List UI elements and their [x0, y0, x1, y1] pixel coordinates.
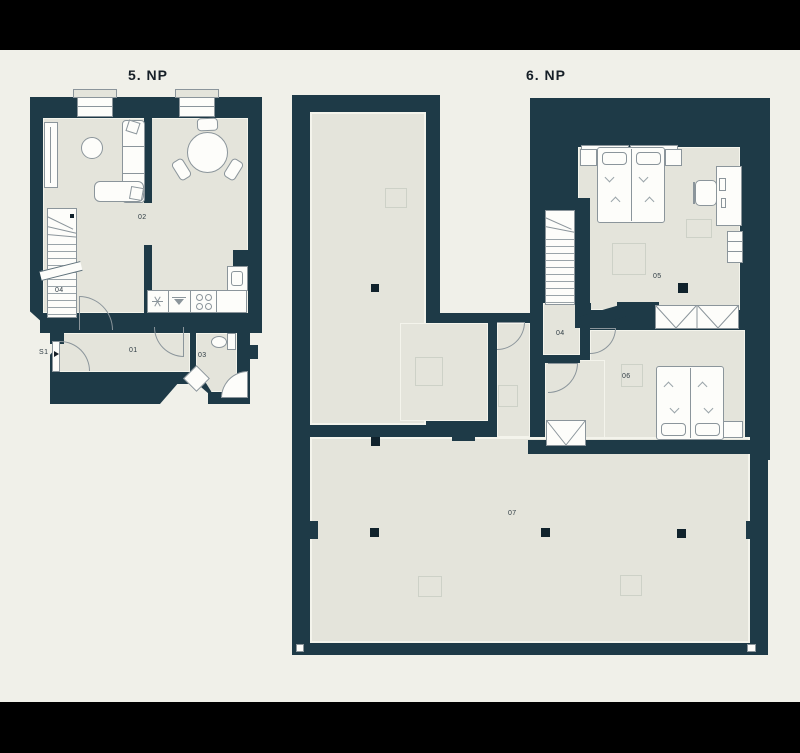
- bed-06-chevron-3: [670, 404, 680, 414]
- dining-table-icon: [187, 132, 228, 173]
- room-label-02: 02: [138, 214, 147, 221]
- room-label-04-6np: 04: [556, 330, 565, 337]
- skylight-corridor: [498, 385, 518, 407]
- bed-05-divider: [631, 149, 632, 221]
- bed-05-icon: [597, 147, 665, 223]
- burner-icon-2: [205, 294, 212, 301]
- shelf-icon: [727, 231, 743, 263]
- partition-upper: [144, 118, 152, 203]
- toilet-bowl-icon: [211, 336, 227, 348]
- burner-icon-1: [196, 294, 203, 301]
- desk-chair-icon: [695, 180, 717, 206]
- skylight-bedroom-05: [612, 243, 646, 275]
- room-label-01: 01: [129, 347, 138, 354]
- dining-chair-top: [197, 118, 218, 132]
- small-room-floor: [400, 323, 488, 421]
- kitchen-divider-3: [216, 291, 217, 312]
- entrance-label-s1: S1: [39, 349, 48, 356]
- desk-monitor: [719, 178, 726, 191]
- corner-notch-se: [747, 644, 756, 652]
- wall-stair-east: [573, 198, 590, 305]
- bench-06-icon: [723, 421, 743, 438]
- kitchen-divider-2: [190, 291, 191, 312]
- entrance-arrow-icon: [54, 351, 59, 357]
- column-07-a: [371, 437, 380, 446]
- bed-05-pillow-right: [636, 152, 661, 165]
- column-07-b: [370, 528, 379, 537]
- desk-chair-back: [693, 182, 695, 204]
- toilet-tank-icon: [227, 333, 236, 350]
- room-label-06: 06: [622, 373, 631, 380]
- skylight-07-a: [418, 576, 442, 597]
- desk-icon: [716, 166, 742, 226]
- bed-05-chevron-2: [639, 173, 649, 183]
- wall-hall-top-b: [113, 313, 152, 333]
- wall-06-north: [617, 302, 659, 316]
- wall-pilaster-west: [309, 521, 318, 539]
- wall-room04-south: [543, 355, 580, 363]
- chimney-icon: [678, 283, 688, 293]
- bed-06-chevron-2: [698, 382, 708, 392]
- bed-05-chevron-3: [611, 197, 621, 207]
- sofa-cushion-line-2: [123, 173, 144, 174]
- wall-smallroom-notch: [452, 430, 475, 441]
- corner-notch-sw: [296, 644, 304, 652]
- wardrobe-icon-05: [655, 305, 739, 329]
- burner-icon-3: [196, 303, 203, 310]
- side-table-square-bottom: [129, 186, 144, 201]
- wall-hall-bottom: [53, 372, 193, 384]
- radiator-line: [50, 127, 51, 183]
- room-07-floor: [310, 437, 750, 643]
- skylight-small-room: [415, 357, 443, 386]
- hood-icon-bar: [172, 297, 186, 298]
- bed-06-chevron-4: [704, 404, 714, 414]
- wall-notch-east: [746, 521, 756, 539]
- kitchen-divider-1: [168, 291, 169, 312]
- room-label-07: 07: [508, 510, 517, 517]
- column-07-d: [677, 529, 686, 538]
- bed-05-chevron-1: [605, 173, 615, 183]
- window-2-mullion: [180, 106, 214, 107]
- skylight-tall-room: [385, 188, 407, 208]
- desk-keyboard: [721, 198, 726, 208]
- bed-06-pillow-left: [661, 423, 686, 436]
- bed-06-divider: [690, 368, 691, 438]
- nightstand-right: [665, 149, 682, 166]
- nightstand-left: [580, 149, 597, 166]
- sofa-cushion-line-1: [123, 146, 144, 147]
- skylight-bedroom-05b: [686, 219, 712, 238]
- floor-plan-image: 5. NP: [0, 0, 800, 753]
- radiator-icon: [44, 122, 58, 188]
- column-tall-room: [371, 284, 379, 292]
- stair-newel-dot: [70, 214, 74, 218]
- burner-icon-4: [205, 303, 212, 310]
- wardrobe-icon-06: [546, 420, 586, 446]
- room-label-03: 03: [198, 352, 207, 359]
- bed-06-pillow-right: [695, 423, 720, 436]
- skylight-07-b: [620, 575, 642, 596]
- hood-icon: [174, 299, 184, 305]
- room-label-05: 05: [653, 273, 662, 280]
- column-07-c: [541, 528, 550, 537]
- window-1-mullion: [78, 106, 112, 107]
- letterbox-top: [0, 0, 800, 50]
- kitchen-sink-2: [231, 271, 243, 286]
- bed-06-icon: [656, 366, 724, 440]
- window-1: [77, 97, 113, 117]
- room-label-04-5np: 04: [55, 287, 64, 294]
- side-table-round: [81, 137, 103, 159]
- bed-06-chevron-1: [664, 382, 674, 392]
- bed-05-chevron-4: [645, 197, 655, 207]
- floor-title-6np: 6. NP: [516, 67, 576, 83]
- bed-05-pillow-left: [602, 152, 627, 165]
- window-2: [179, 97, 215, 117]
- shelf-line-2: [728, 251, 742, 252]
- letterbox-bottom: [0, 702, 800, 753]
- floor-title-5np: 5. NP: [118, 67, 178, 83]
- shelf-line-1: [728, 241, 742, 242]
